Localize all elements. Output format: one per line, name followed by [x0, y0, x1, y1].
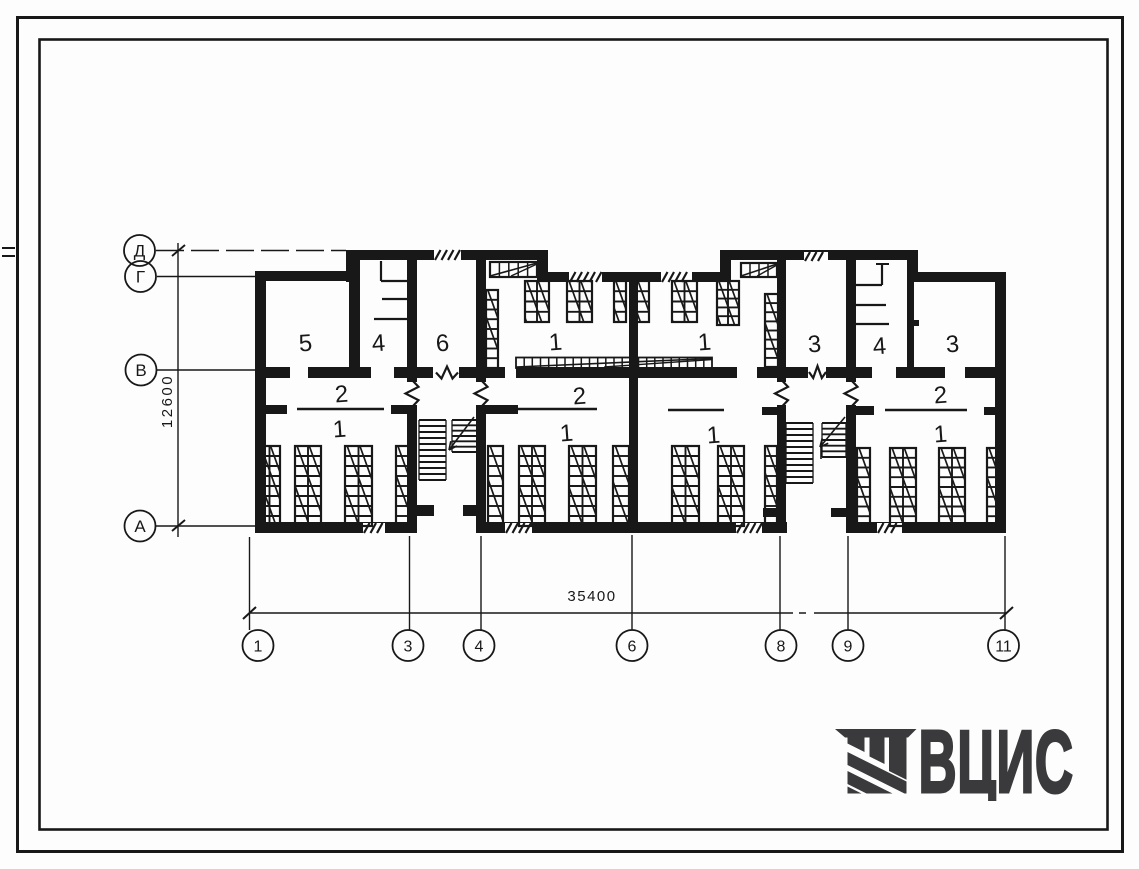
- svg-text:1: 1: [559, 420, 574, 448]
- svg-text:1: 1: [332, 416, 347, 444]
- svg-text:4: 4: [872, 333, 887, 361]
- svg-text:2: 2: [334, 381, 349, 409]
- svg-text:4: 4: [371, 330, 386, 358]
- svg-text:1: 1: [548, 329, 563, 357]
- svg-text:4: 4: [475, 639, 484, 656]
- svg-text:5: 5: [298, 330, 313, 358]
- svg-text:3: 3: [404, 639, 413, 656]
- svg-text:А: А: [134, 517, 146, 536]
- svg-text:Д: Д: [134, 242, 146, 261]
- svg-text:2: 2: [572, 383, 587, 411]
- svg-text:2: 2: [933, 382, 948, 410]
- svg-text:1: 1: [706, 422, 721, 450]
- svg-text:1: 1: [933, 421, 948, 449]
- svg-text:1: 1: [254, 639, 263, 656]
- svg-text:6: 6: [435, 330, 450, 358]
- svg-text:3: 3: [945, 331, 960, 359]
- svg-text:8: 8: [777, 639, 786, 656]
- svg-text:9: 9: [844, 639, 853, 656]
- svg-text:6: 6: [628, 639, 637, 656]
- svg-text:В: В: [135, 361, 146, 380]
- svg-text:3: 3: [807, 331, 822, 359]
- svg-text:12600: 12600: [159, 374, 176, 428]
- svg-text:ВЦИС: ВЦИС: [919, 713, 1074, 811]
- svg-text:1: 1: [697, 329, 712, 357]
- svg-text:35400: 35400: [567, 588, 616, 605]
- svg-text:Г: Г: [136, 268, 145, 287]
- svg-text:11: 11: [995, 639, 1012, 656]
